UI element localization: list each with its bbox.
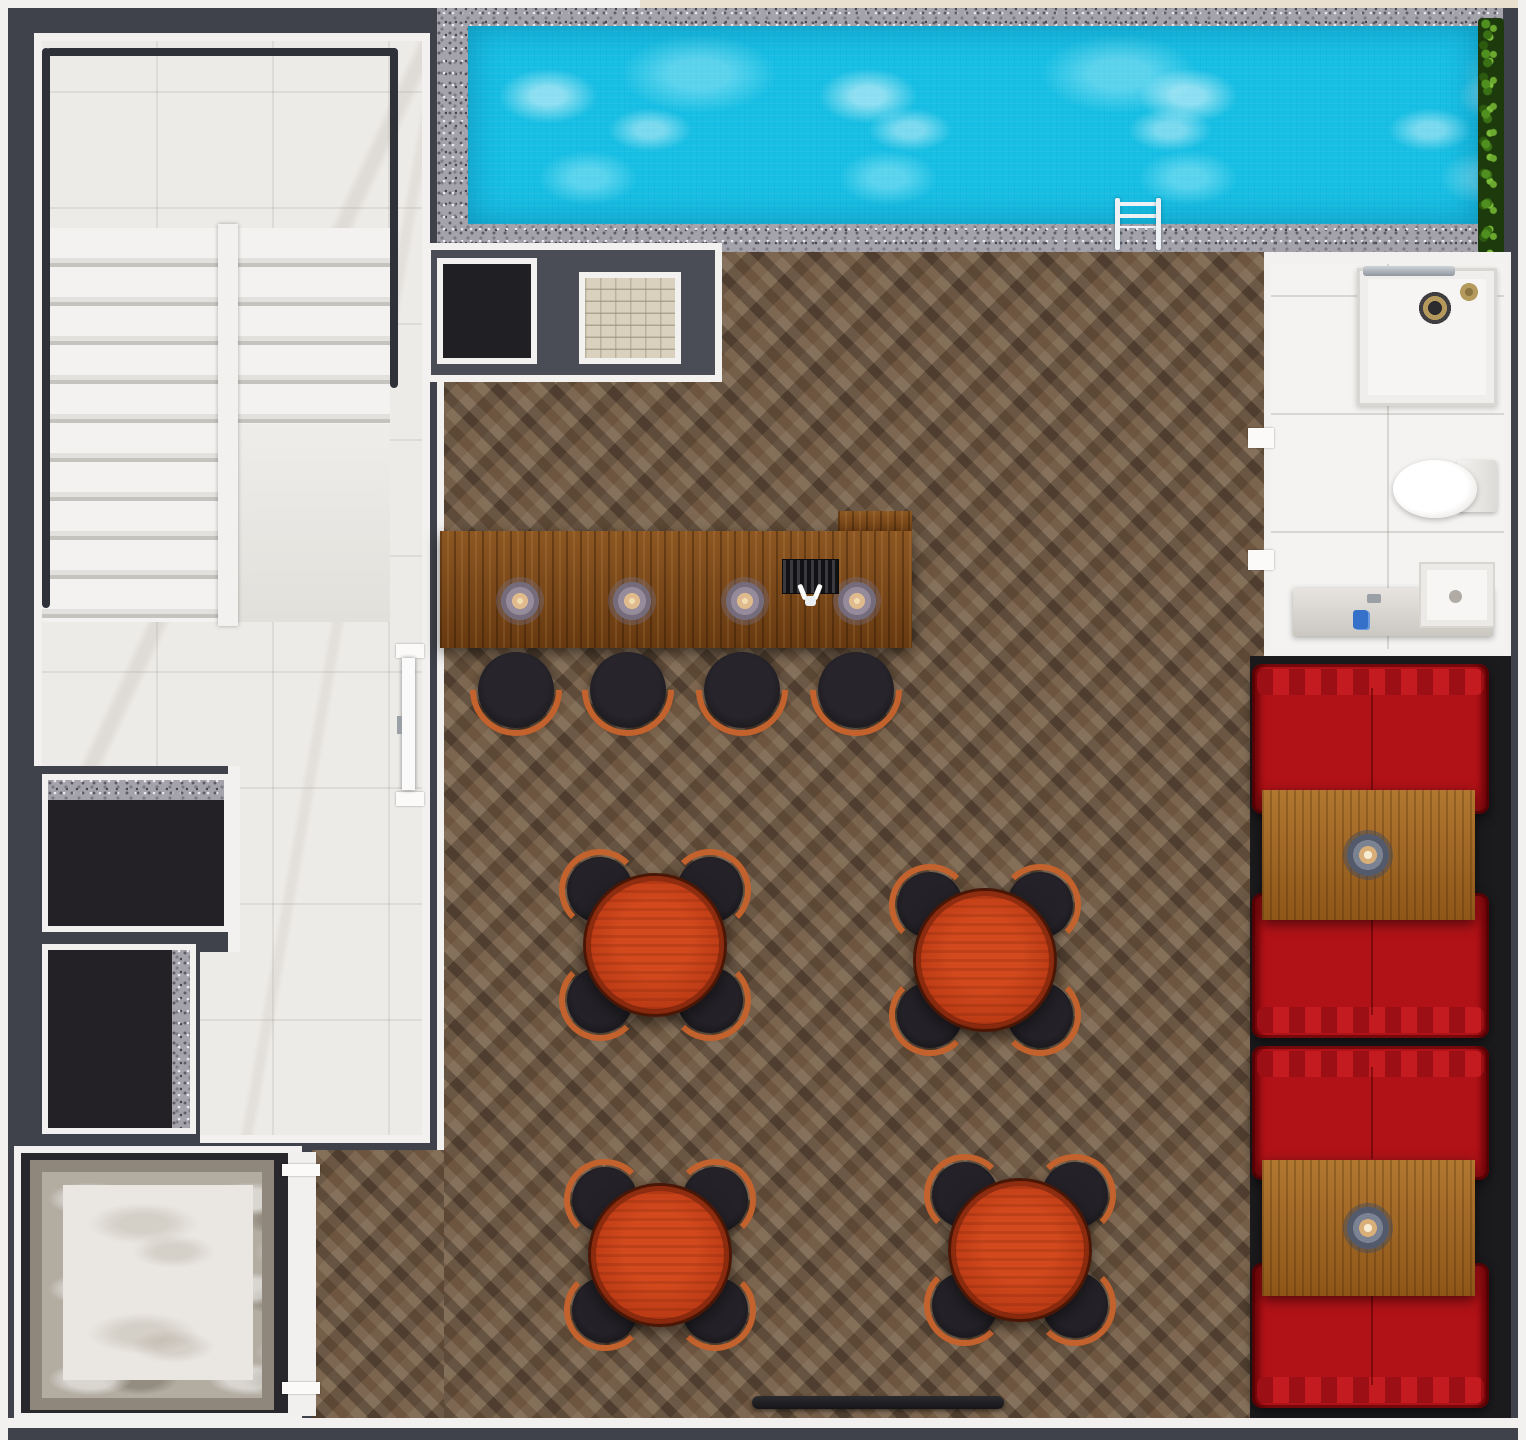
booth-2-candle-icon: [1342, 1202, 1394, 1254]
handrail-top: [46, 48, 398, 56]
dining-table: [913, 888, 1057, 1032]
bar-place-setting-4: [832, 576, 882, 626]
outer-wall-trim-right: [1518, 0, 1526, 1440]
entry-mat: [752, 1396, 1004, 1409]
storage-room-2: [42, 944, 196, 1134]
black-panel: [437, 258, 537, 364]
dining-set-4: [932, 1162, 1108, 1338]
dining-set-1: [567, 857, 743, 1033]
floor-plan-canvas: [0, 0, 1526, 1440]
bathroom-door-jamb-lower: [1248, 550, 1274, 570]
dining-table: [588, 1183, 732, 1327]
storage-room-1: [42, 774, 230, 932]
tap-body: [805, 596, 816, 606]
dining-set-2: [897, 872, 1073, 1048]
bar-stool-2: [590, 652, 666, 728]
sink-drain-icon: [1449, 590, 1462, 603]
stair-flight-right: [238, 228, 390, 424]
hall-door-jamb-bottom: [396, 792, 424, 806]
vanity-towel: [1353, 610, 1368, 629]
bathroom-door-jamb-upper: [1248, 428, 1274, 448]
wall-niche: [424, 243, 722, 382]
stair-landing-lower: [238, 424, 390, 622]
dining-table: [948, 1178, 1092, 1322]
bar-stool-3: [704, 652, 780, 728]
handrail-right: [390, 48, 398, 388]
bar-lounge-floor-annex: [312, 1150, 444, 1418]
shower-bar: [1363, 266, 1455, 276]
pool-deck: [437, 0, 1503, 252]
outer-wall-trim-left: [0, 0, 8, 1440]
vanity-faucet-icon: [1367, 594, 1381, 603]
elevator-corridor: [288, 1152, 316, 1416]
bar-stool-4: [818, 652, 894, 728]
pool-ladder-rungs: [1120, 202, 1156, 228]
dining-set-3: [572, 1167, 748, 1343]
elevator-room: [14, 1146, 302, 1420]
stair-divider-wall: [218, 224, 238, 626]
bar-lounge-floor: [437, 252, 1264, 1418]
hedge-plants: [1478, 18, 1504, 254]
shower-head-icon: [1417, 290, 1453, 326]
stair-flight-left: [42, 228, 218, 622]
shower-drain-icon: [1459, 282, 1479, 302]
pool-ladder-icon: [1113, 198, 1163, 250]
brick-panel: [579, 272, 681, 364]
booth-1-candle-icon: [1342, 829, 1394, 881]
elevator-platform-core: [63, 1185, 253, 1380]
bar-place-setting-1: [495, 576, 545, 626]
storage-room-2-threshold: [172, 950, 190, 1128]
storage-room-1-threshold: [48, 780, 224, 800]
corridor-jamb-top: [282, 1164, 320, 1176]
booth-alcove: [1250, 656, 1511, 1418]
dining-table: [583, 873, 727, 1017]
toilet-bowl: [1393, 460, 1477, 518]
stairwell-hall: [34, 33, 430, 1143]
corridor-jamb-bottom: [282, 1382, 320, 1394]
handrail-left: [42, 48, 50, 608]
elevator-platform: [30, 1160, 274, 1410]
deck-trim-beige: [640, 0, 1526, 8]
hall-door-jamb-top: [396, 644, 424, 658]
bathroom: [1264, 252, 1511, 656]
pool-water: [468, 26, 1478, 224]
bar-place-setting-2: [607, 576, 657, 626]
beer-tap-handles-icon: [798, 584, 822, 606]
hall-door-leaf: [402, 658, 415, 790]
outer-wall-trim-top: [0, 0, 640, 8]
bar-place-setting-3: [720, 576, 770, 626]
hall-door-handle: [397, 716, 402, 734]
outer-wall-trim-bottom: [0, 1418, 1526, 1428]
bar-stool-1: [478, 652, 554, 728]
